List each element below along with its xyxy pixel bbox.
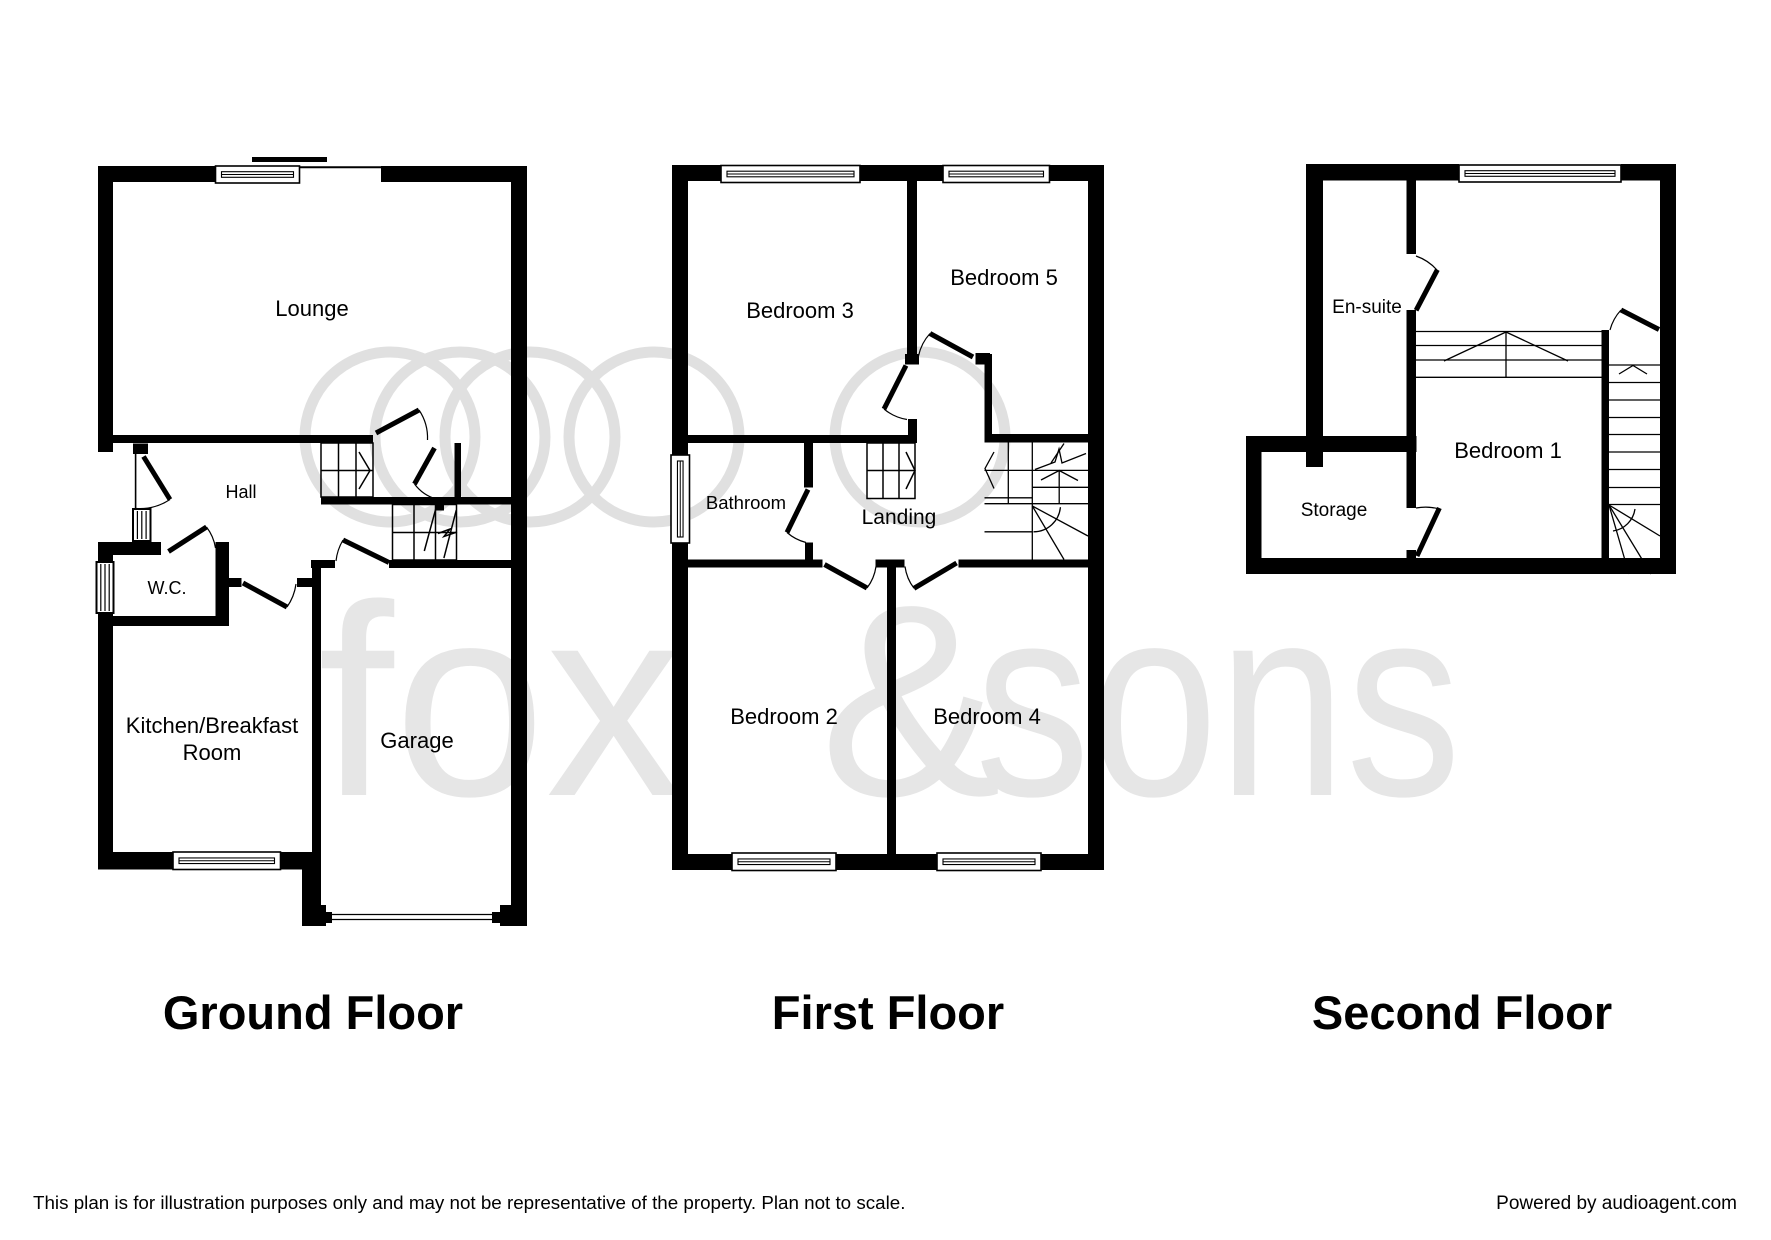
svg-text:W.C.: W.C. <box>148 578 187 598</box>
svg-text:Landing: Landing <box>862 506 937 529</box>
svg-text:Second Floor: Second Floor <box>1312 986 1612 1039</box>
svg-text:This plan is for illustration: This plan is for illustration purposes o… <box>33 1192 905 1213</box>
svg-text:Powered by audioagent.com: Powered by audioagent.com <box>1496 1193 1737 1214</box>
svg-text:sons: sons <box>975 547 1461 853</box>
svg-text:Bathroom: Bathroom <box>706 492 786 513</box>
svg-text:Garage: Garage <box>380 728 453 753</box>
svg-text:Bedroom 1: Bedroom 1 <box>1454 438 1562 463</box>
svg-text:Lounge: Lounge <box>275 296 348 321</box>
svg-text:First Floor: First Floor <box>772 986 1004 1039</box>
svg-text:Ground Floor: Ground Floor <box>163 986 463 1039</box>
svg-text:Bedroom 3: Bedroom 3 <box>746 298 854 323</box>
svg-text:Bedroom 5: Bedroom 5 <box>950 265 1058 290</box>
svg-text:Hall: Hall <box>225 482 256 502</box>
svg-text:Storage: Storage <box>1301 500 1368 521</box>
svg-text:Bedroom 4: Bedroom 4 <box>933 704 1041 729</box>
svg-text:Room: Room <box>183 740 242 765</box>
svg-text:fox: fox <box>318 548 682 853</box>
svg-text:Kitchen/Breakfast: Kitchen/Breakfast <box>126 713 298 738</box>
svg-text:Bedroom 2: Bedroom 2 <box>730 704 838 729</box>
svg-text:En-suite: En-suite <box>1332 297 1402 318</box>
